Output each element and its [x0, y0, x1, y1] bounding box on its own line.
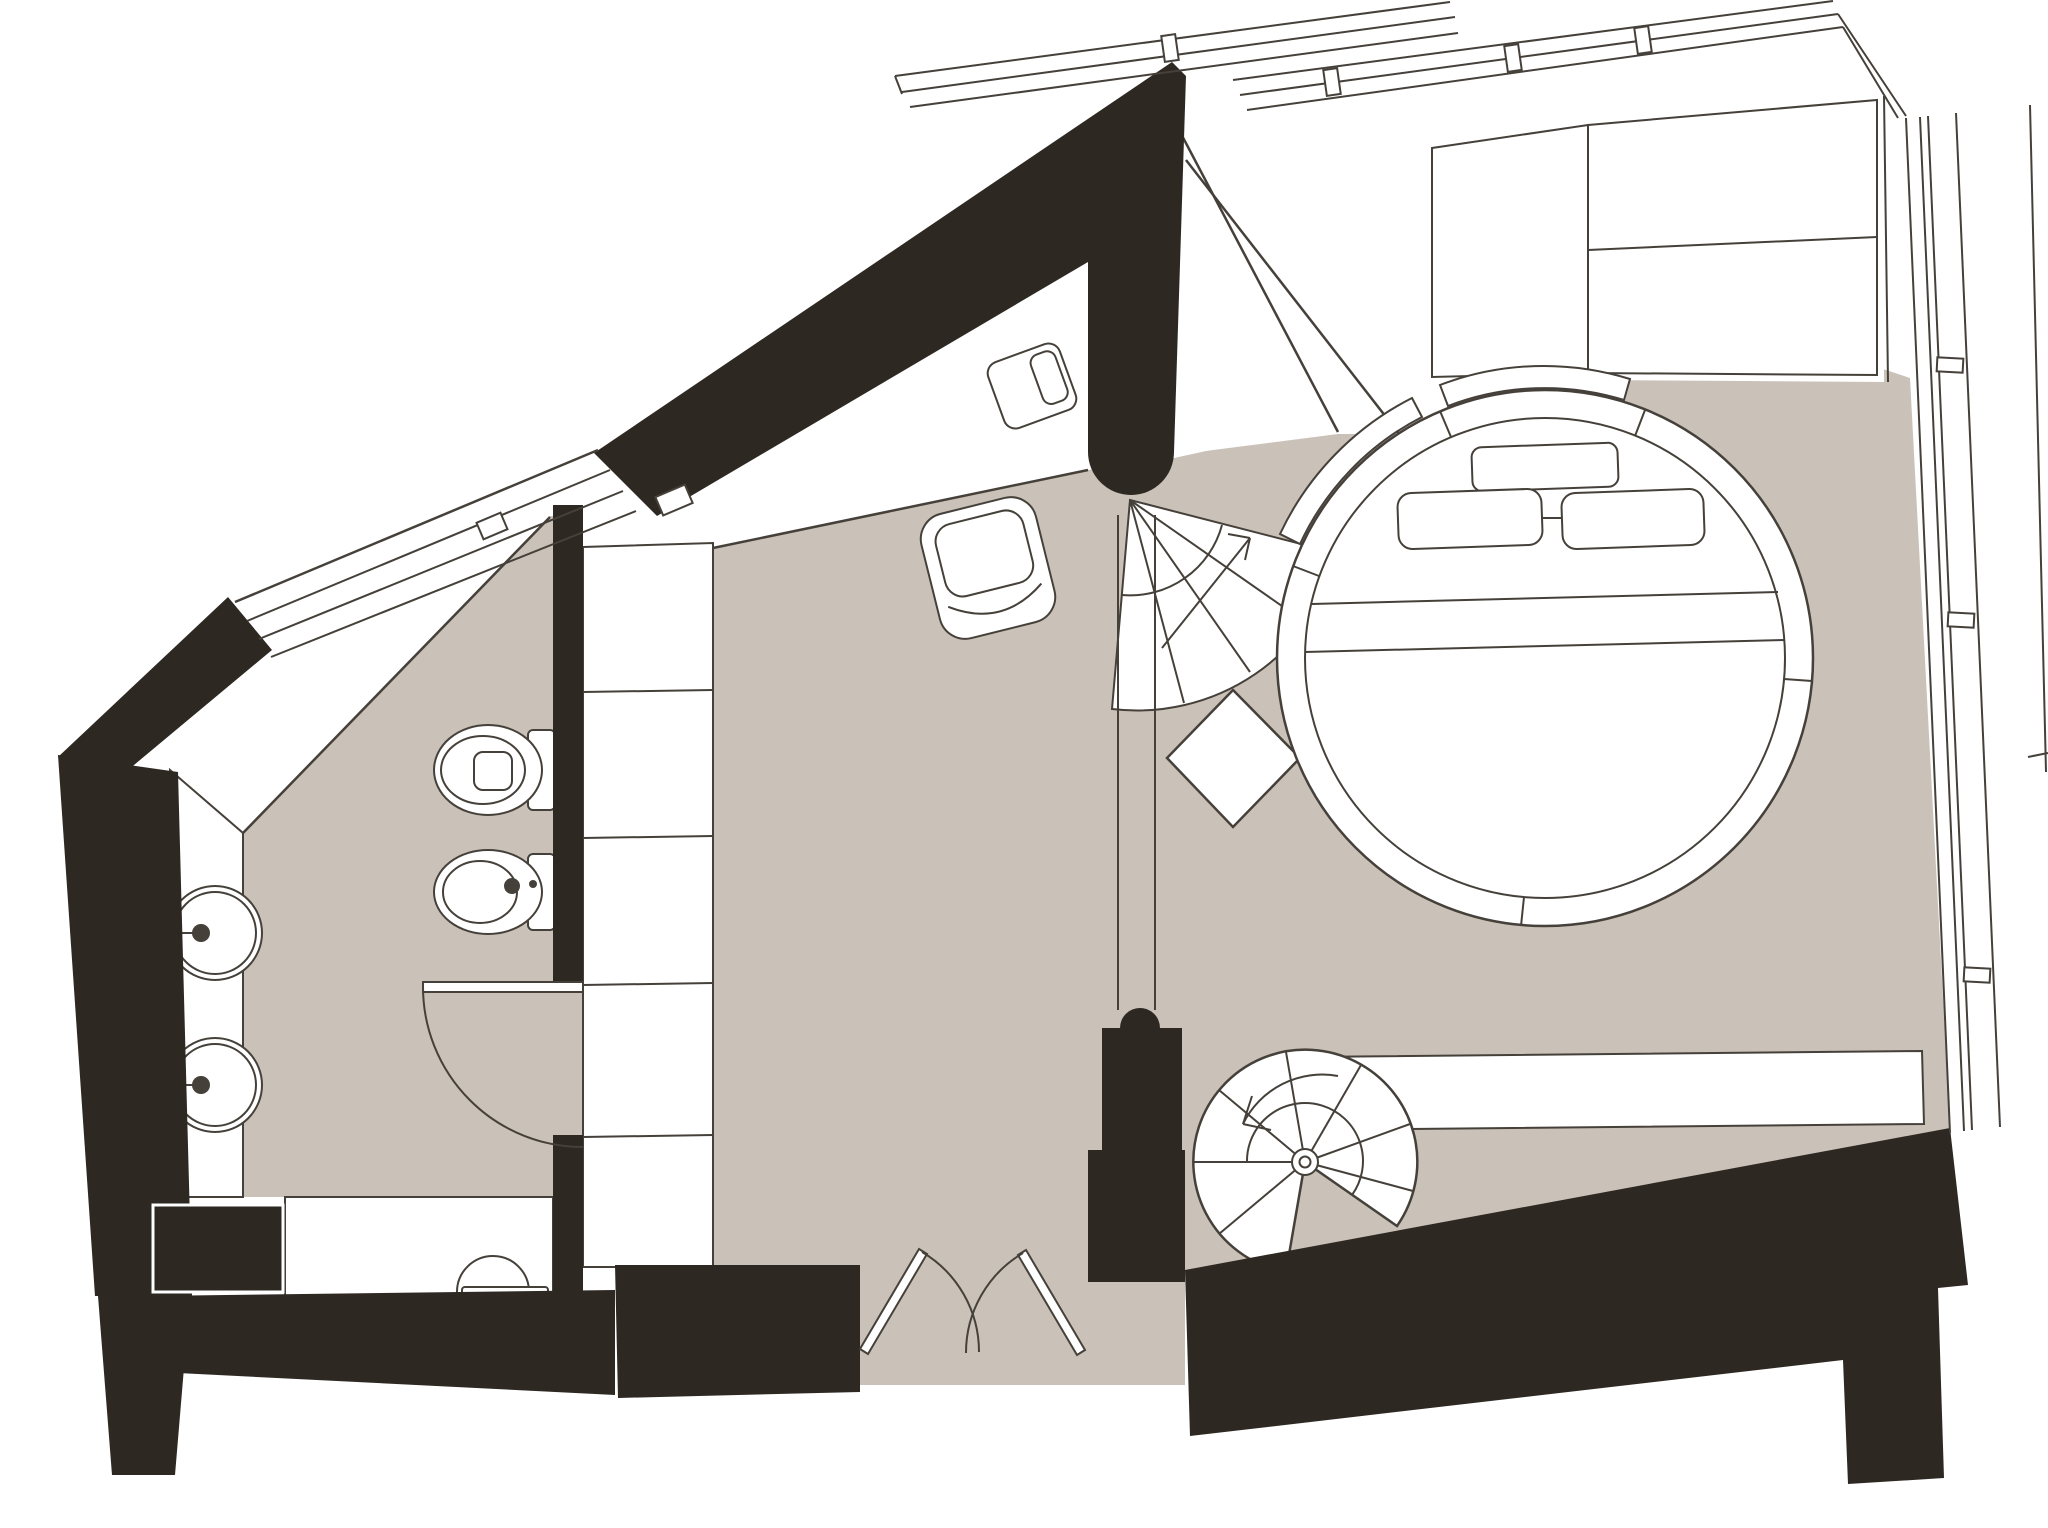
floor-plan-drawing — [0, 0, 2048, 1528]
toilet — [434, 725, 555, 815]
wall-pier-bullnose-top — [1088, 409, 1174, 495]
wall-stub — [1102, 1028, 1182, 1154]
floor-plan-page — [0, 0, 2048, 1528]
wall-stub-lower — [1088, 1150, 1185, 1282]
wardrobe — [1432, 96, 1888, 382]
wall-left-descender — [98, 1296, 190, 1475]
wall-entry-left-block — [615, 1265, 860, 1398]
shelf-column — [583, 543, 713, 1267]
bath-cabinet-block — [153, 1205, 283, 1292]
pillow-right — [1561, 489, 1705, 550]
pillow-left — [1397, 489, 1543, 550]
wall-bathroom-divider-lower — [553, 1135, 583, 1310]
bidet — [434, 850, 555, 934]
headboard-cushion — [1471, 442, 1618, 491]
wall-bathroom-divider-upper — [553, 505, 583, 987]
